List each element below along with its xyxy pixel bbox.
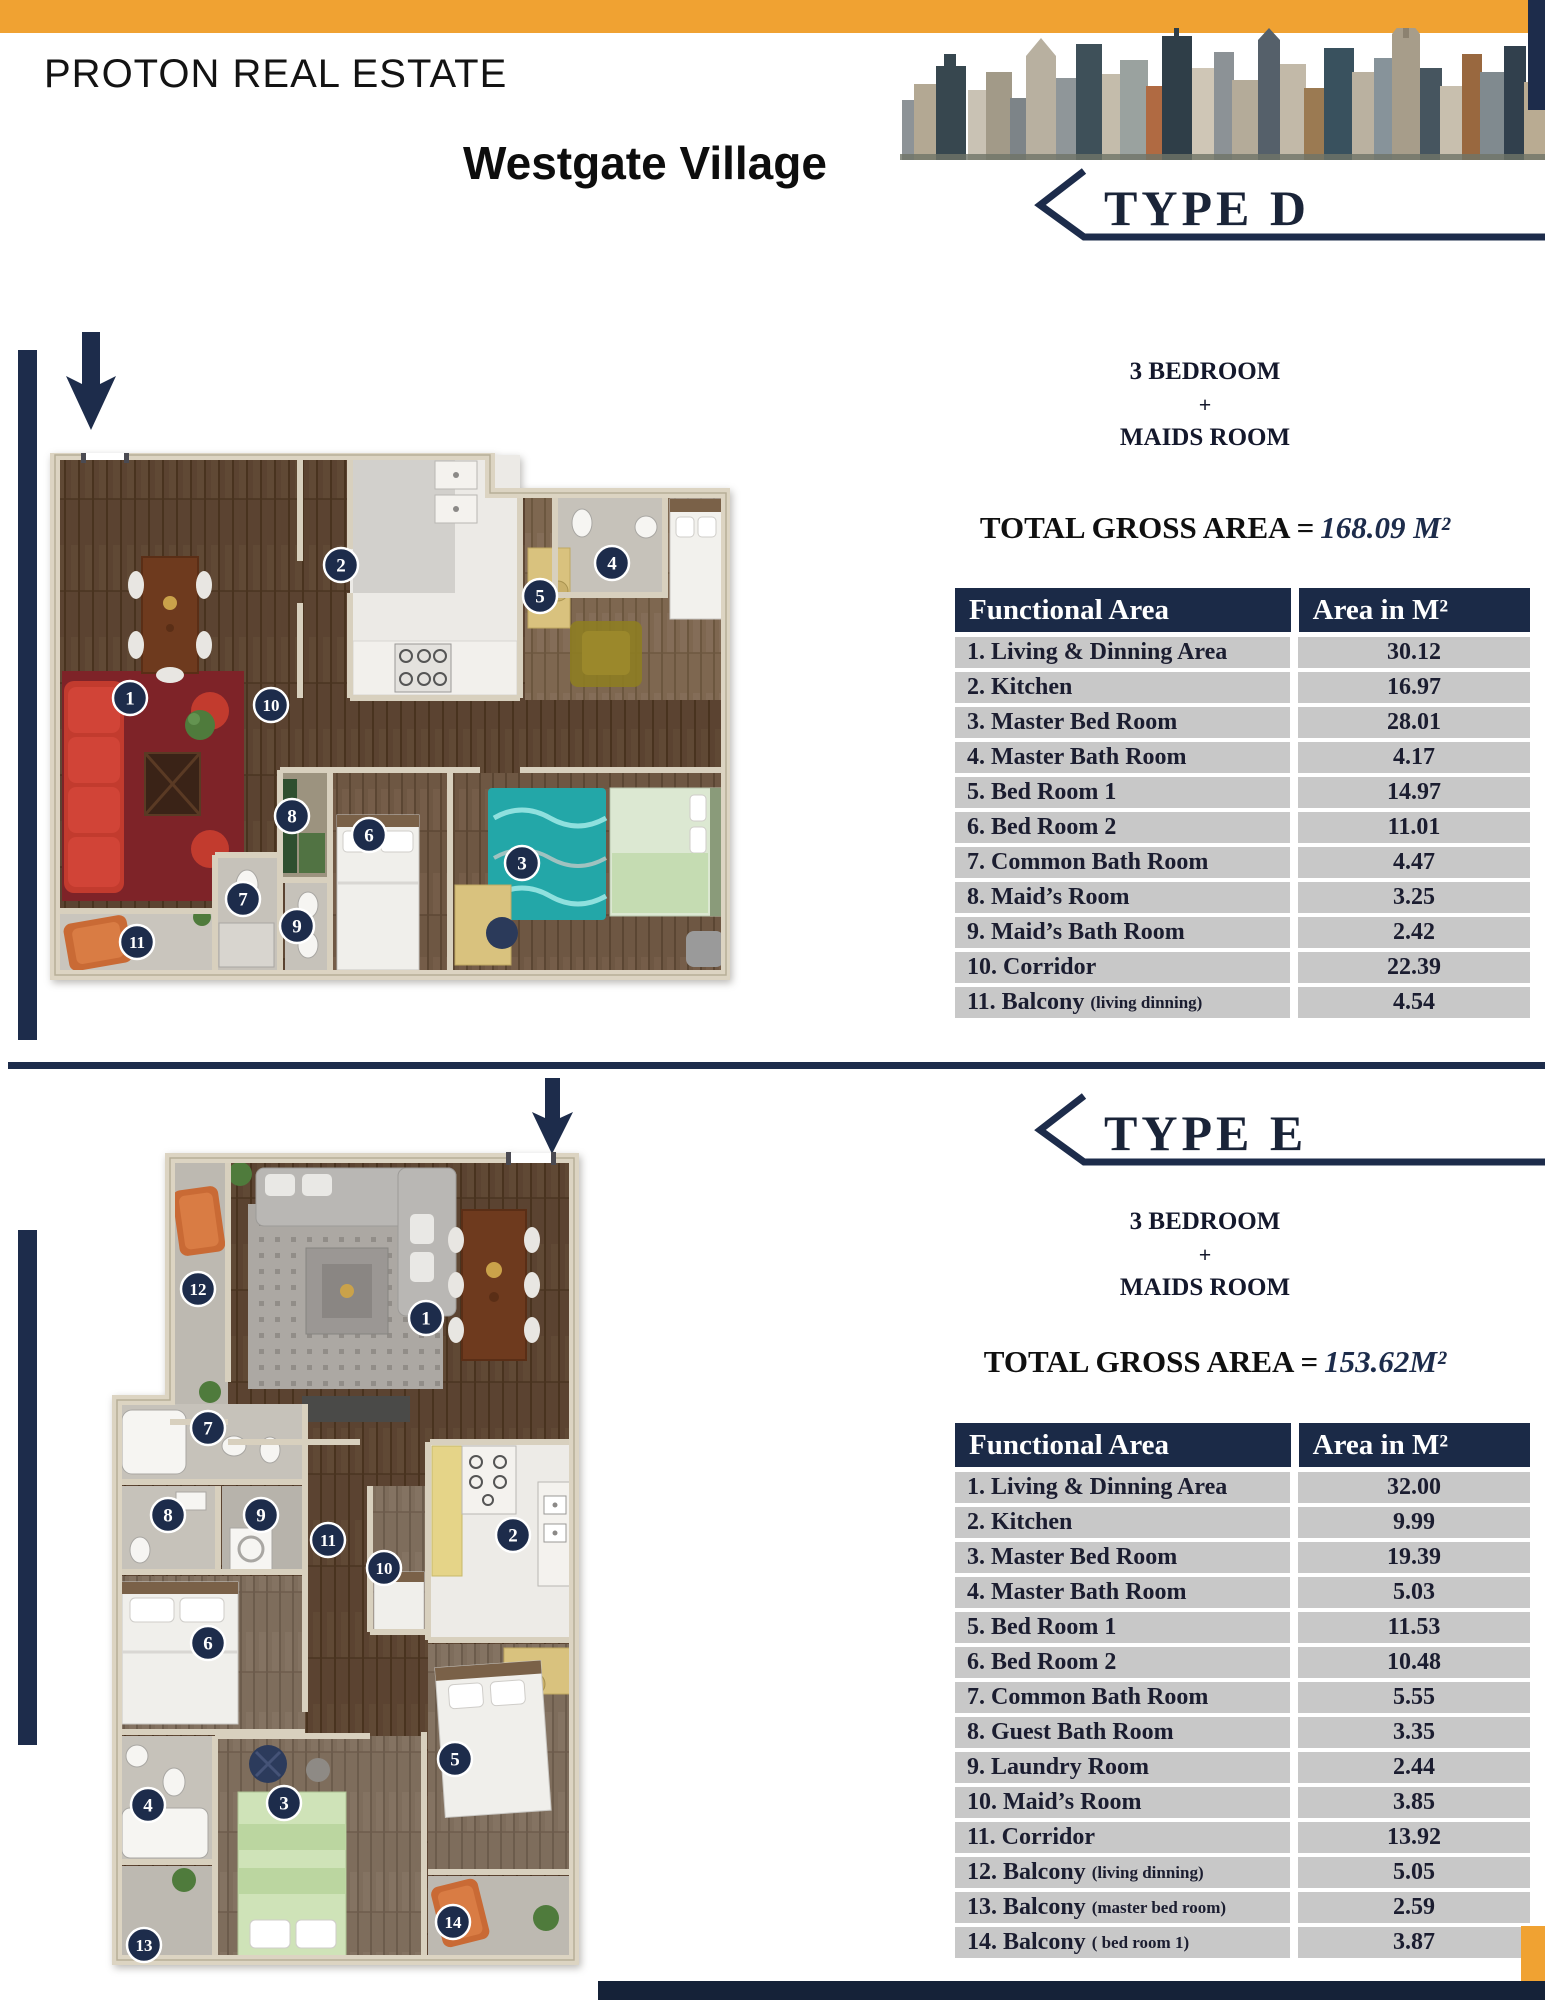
- svg-text:4: 4: [143, 1796, 153, 1817]
- svg-text:7: 7: [238, 890, 248, 911]
- table-row: 13. Balcony(master bed room) 2.59: [955, 1892, 1530, 1923]
- svg-text:5: 5: [535, 587, 545, 608]
- room-badge: 10: [254, 688, 288, 722]
- room-badge: 11: [311, 1523, 345, 1557]
- room-badge: 2: [324, 548, 358, 582]
- table-row: 10. Maid’s Room 3.85: [955, 1787, 1530, 1818]
- type-d-total-area: TOTAL GROSS AREA =168.09 M²: [895, 510, 1535, 546]
- company-name: PROTON REAL ESTATE: [44, 52, 507, 97]
- svg-text:6: 6: [364, 826, 374, 847]
- col-area-m2: Area in M²: [1299, 1423, 1530, 1467]
- svg-text:4: 4: [607, 554, 617, 575]
- side-accent-bar: [18, 1230, 37, 1745]
- master-bedroom-area: [450, 773, 726, 973]
- col-functional-area: Functional Area: [955, 1423, 1291, 1467]
- entrance-arrow-icon: [529, 1078, 577, 1154]
- plus-sign: +: [905, 1242, 1505, 1268]
- section-divider: [8, 1062, 1545, 1069]
- svg-text:2: 2: [508, 1526, 518, 1547]
- type-d-rooms-summary: 3 BEDROOM + MAIDS ROOM: [905, 358, 1505, 452]
- type-d-label: TYPE D: [1104, 180, 1310, 236]
- table-row: 8. Maid’s Room 3.25: [955, 882, 1530, 913]
- table-row: 8. Guest Bath Room 3.35: [955, 1717, 1530, 1748]
- total-value: 168.09 M²: [1320, 510, 1450, 545]
- maids-room-label: MAIDS ROOM: [905, 1274, 1505, 1302]
- type-d-banner: TYPE D: [1020, 165, 1545, 245]
- svg-text:1: 1: [421, 1309, 431, 1330]
- room-badge: 9: [280, 909, 314, 943]
- side-accent-bar: [18, 350, 37, 1040]
- brochure-page: PROTON REAL ESTATE Westgate Village: [0, 0, 1545, 2000]
- table-row: 10. Corridor 22.39: [955, 952, 1530, 983]
- svg-text:12: 12: [190, 1280, 207, 1299]
- table-row: 9. Maid’s Bath Room 2.42: [955, 917, 1530, 948]
- room-badge: 4: [131, 1788, 165, 1822]
- bedroom-count: 3 BEDROOM: [905, 358, 1505, 386]
- type-e-area-table: Functional Area Area in M² 1. Living & D…: [955, 1423, 1530, 1962]
- type-e-label: TYPE E: [1104, 1105, 1307, 1161]
- room-badge: 4: [595, 546, 629, 580]
- maids-room-label: MAIDS ROOM: [905, 424, 1505, 452]
- total-label: TOTAL GROSS AREA =: [980, 510, 1314, 545]
- footer-accent-orange: [1521, 1926, 1545, 1983]
- corner-accent: [1528, 0, 1545, 110]
- room-badge: 8: [151, 1498, 185, 1532]
- svg-text:3: 3: [517, 854, 527, 875]
- table-row: 4. Master Bath Room 5.03: [955, 1577, 1530, 1608]
- table-row: 12. Balcony(living dinning) 5.05: [955, 1857, 1530, 1888]
- svg-text:3: 3: [279, 1794, 289, 1815]
- room-badge: 13: [127, 1928, 161, 1962]
- svg-text:8: 8: [163, 1506, 173, 1527]
- table-row: 5. Bed Room 1 14.97: [955, 777, 1530, 808]
- entry-door-gap: [508, 1153, 554, 1163]
- room-badge: 1: [113, 681, 147, 715]
- svg-text:10: 10: [263, 696, 280, 715]
- table-row: 1. Living & Dinning Area 30.12: [955, 637, 1530, 668]
- room-badge: 9: [244, 1498, 278, 1532]
- svg-text:7: 7: [203, 1419, 213, 1440]
- col-area-m2: Area in M²: [1299, 588, 1530, 632]
- footer-bar: [598, 1981, 1545, 2000]
- room-badge: 3: [267, 1786, 301, 1820]
- room-badge: 5: [438, 1742, 472, 1776]
- table-row: 1. Living & Dinning Area 32.00: [955, 1472, 1530, 1503]
- type-e-rooms-summary: 3 BEDROOM + MAIDS ROOM: [905, 1208, 1505, 1302]
- entry-door-gap: [83, 453, 127, 460]
- room-badge: 1: [409, 1301, 443, 1335]
- svg-text:6: 6: [203, 1634, 213, 1655]
- room-badge: 8: [275, 799, 309, 833]
- svg-text:10: 10: [376, 1559, 393, 1578]
- total-label: TOTAL GROSS AREA =: [984, 1344, 1318, 1379]
- svg-text:8: 8: [287, 807, 297, 828]
- table-row: 14. Balcony( bed room 1) 3.87: [955, 1927, 1530, 1958]
- type-d-area-table: Functional Area Area in M² 1. Living & D…: [955, 588, 1530, 1022]
- table-row: 2. Kitchen 9.99: [955, 1507, 1530, 1538]
- svg-text:14: 14: [445, 1913, 463, 1932]
- room-badge: 7: [226, 882, 260, 916]
- room-badge: 14: [436, 1905, 470, 1939]
- svg-text:11: 11: [129, 933, 145, 952]
- floor-plan-type-d: 1 2 3 4 5 6 7 8 9 10 11: [50, 453, 730, 980]
- room-badge: 12: [181, 1272, 215, 1306]
- room-badge: 6: [191, 1626, 225, 1660]
- floor-plan-type-e: 1 2 3 4 5 6 7 8 9 10 11 12 13 14: [110, 1152, 580, 1978]
- col-functional-area: Functional Area: [955, 588, 1291, 632]
- room-badge: 6: [352, 818, 386, 852]
- entrance-arrow-icon: [62, 332, 120, 430]
- table-header: Functional Area Area in M²: [955, 588, 1530, 632]
- table-row: 7. Common Bath Room 5.55: [955, 1682, 1530, 1713]
- table-row: 2. Kitchen 16.97: [955, 672, 1530, 703]
- room-badge: 3: [505, 846, 539, 880]
- svg-text:11: 11: [320, 1531, 336, 1550]
- table-row: 11. Corridor 13.92: [955, 1822, 1530, 1853]
- table-row: 4. Master Bath Room 4.17: [955, 742, 1530, 773]
- svg-text:9: 9: [292, 917, 302, 938]
- table-row: 6. Bed Room 2 10.48: [955, 1647, 1530, 1678]
- svg-text:9: 9: [256, 1506, 266, 1527]
- room-badge: 5: [523, 579, 557, 613]
- type-e-banner: TYPE E: [1020, 1090, 1545, 1170]
- table-row: 3. Master Bed Room 19.39: [955, 1542, 1530, 1573]
- plus-sign: +: [905, 392, 1505, 418]
- room-badge: 10: [367, 1551, 401, 1585]
- plant: [185, 710, 215, 740]
- room-badge: 2: [496, 1518, 530, 1552]
- table-row: 5. Bed Room 1 11.53: [955, 1612, 1530, 1643]
- table-row: 6. Bed Room 2 11.01: [955, 812, 1530, 843]
- table-header: Functional Area Area in M²: [955, 1423, 1530, 1467]
- master-bedroom-area: [215, 1736, 424, 1960]
- bedroom-count: 3 BEDROOM: [905, 1208, 1505, 1236]
- svg-text:5: 5: [450, 1750, 460, 1771]
- table-row: 3. Master Bed Room 28.01: [955, 707, 1530, 738]
- room-badge: 11: [120, 925, 154, 959]
- room-badge: 7: [191, 1411, 225, 1445]
- svg-text:2: 2: [336, 556, 346, 577]
- svg-text:13: 13: [136, 1936, 153, 1955]
- table-row: 11. Balcony(living dinning) 4.54: [955, 987, 1530, 1018]
- total-value: 153.62M²: [1324, 1344, 1446, 1379]
- bedroom-2-area: [330, 773, 450, 973]
- svg-text:1: 1: [125, 689, 135, 710]
- type-e-total-area: TOTAL GROSS AREA =153.62M²: [895, 1344, 1535, 1380]
- table-row: 9. Laundry Room 2.44: [955, 1752, 1530, 1783]
- table-row: 7. Common Bath Room 4.47: [955, 847, 1530, 878]
- city-skyline-image: [900, 28, 1545, 160]
